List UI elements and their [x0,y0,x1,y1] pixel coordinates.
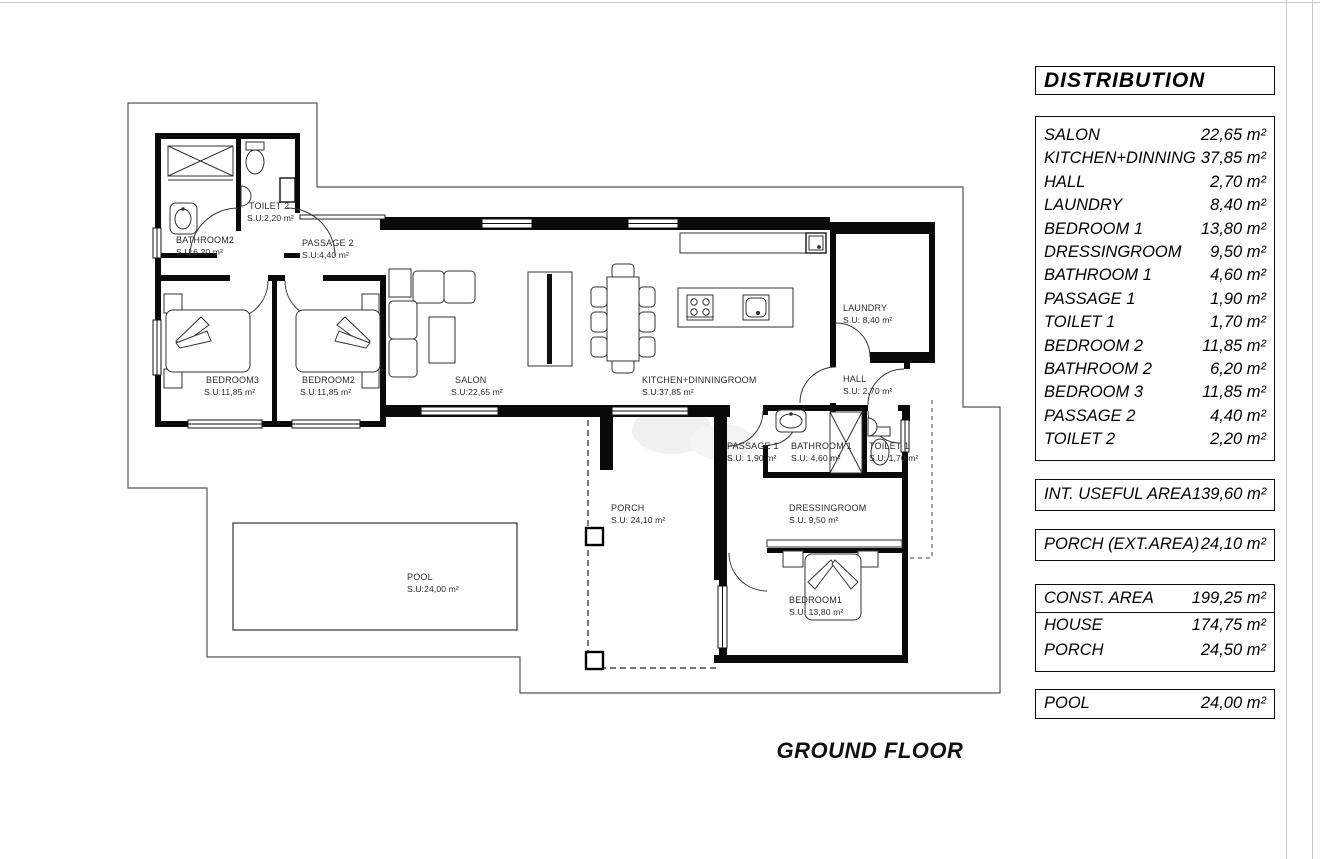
room-area: 4,60 m² [1210,264,1266,287]
room-label: BATHROOM 1 [791,441,852,451]
toilet2-duct [280,178,295,202]
summary-value: 24,10 m² [1201,535,1266,554]
list-item: PASSAGE 11,90 m² [1044,288,1266,311]
room-area: 13,80 m² [1201,218,1266,241]
window-symbol [292,420,360,428]
room-label: HALL [1044,171,1085,194]
room-area-label: S.U: 1,90 m² [727,453,776,463]
sink-symbol [170,203,197,234]
room-label: BATHROOM 2 [1044,358,1152,381]
window-symbol [153,228,161,258]
room-label: DRESSINGROOM [1044,241,1182,264]
room-label: PASSAGE 1 [1044,288,1135,311]
room-area: 9,50 m² [1210,241,1266,264]
overhang-dashed-line [908,400,932,558]
list-item: BATHROOM 26,20 m² [1044,358,1266,381]
window-symbol [153,320,161,375]
door-arc [836,323,870,357]
room-label: TOILET 1 [869,441,909,451]
room-label: BEDROOM2 [302,375,355,385]
list-item: SALON22,65 m² [1044,124,1266,147]
room-area: 22,65 m² [1201,124,1266,147]
ground-floor-title: GROUND FLOOR [777,738,964,763]
room-area-label: S.U:22,65 m² [451,387,503,397]
room-label: PORCH [611,503,645,513]
list-item: BEDROOM 311,85 m² [1044,381,1266,404]
toilet-symbol [246,142,264,174]
room-area-label: S.U: 8,40 m² [843,315,892,325]
summary-value: 174,75 m² [1192,613,1266,638]
room-label: LAUNDRY [843,303,887,313]
window-symbol [628,219,678,228]
summary-value: 24,00 m² [1201,694,1266,713]
wardrobe-symbol [767,540,902,547]
door-arc [800,367,836,403]
room-area: 11,85 m² [1202,335,1266,358]
summary-label: POOL [1044,694,1090,713]
room-label: BEDROOM3 [206,375,259,385]
room-area-label: S.U: 1,70 m² [869,453,918,463]
cooktop-symbol [687,295,713,320]
list-item: BEDROOM 211,85 m² [1044,335,1266,358]
summary-label: CONST. AREA [1044,585,1154,612]
door-arc [729,553,767,591]
room-area: 8,40 m² [1210,194,1266,217]
room-label: HALL [843,374,866,384]
list-item: TOILET 22,20 m² [1044,428,1266,451]
room-label: TOILET 1 [1044,311,1115,334]
room-label: SALON [1044,124,1100,147]
room-area-label: S.U:6,20 m² [176,247,223,257]
room-label: BEDROOM 2 [1044,335,1143,358]
list-item: LAUNDRY8,40 m² [1044,194,1266,217]
room-label: TOILET 2 [249,201,289,211]
list-item: DRESSINGROOM9,50 m² [1044,241,1266,264]
room-label: BEDROOM 3 [1044,381,1143,404]
room-area: 6,20 m² [1210,358,1266,381]
summary-label: PORCH (EXT.AREA) [1044,535,1199,554]
const-area-box: CONST. AREA 199,25 m² HOUSE 174,75 m² PO… [1035,584,1275,672]
list-item: HALL2,70 m² [1044,171,1266,194]
room-area-label: S.U:4,40 m² [302,250,349,260]
room-area-label: S.U:24,00 m² [407,584,459,594]
room-area-label: S.U: 13,80 m² [789,607,843,617]
summary-label: HOUSE [1044,613,1103,638]
window-symbol [718,586,727,648]
list-item: PASSAGE 24,40 m² [1044,405,1266,428]
room-area: 4,40 m² [1210,405,1266,428]
room-area-label: S.U: 4,60 m² [791,453,840,463]
room-label: KITCHEN+DINNINGROOM [642,375,757,385]
porch-ext-area-box: PORCH (EXT.AREA) 24,10 m² [1035,529,1275,561]
list-item: HOUSE 174,75 m² [1044,613,1266,638]
bed-symbol [164,294,250,388]
room-area-label: S.U:37,85 m² [642,387,694,397]
distribution-room-list: SALON22,65 m² KITCHEN+DINNING37,85 m² HA… [1035,116,1275,461]
room-label: DRESSINGROOM [789,503,866,513]
room-area-label: S.U: 9,50 m² [789,515,838,525]
list-item: BEDROOM 113,80 m² [1044,218,1266,241]
room-area: 1,90 m² [1210,288,1266,311]
window-symbol [421,407,498,415]
list-item: TOILET 11,70 m² [1044,311,1266,334]
room-area: 2,20 m² [1210,428,1266,451]
tv-cabinet-symbol [528,272,572,366]
room-area-label: S.U:2,20 m² [247,213,294,223]
summary-value: 199,25 m² [1192,585,1266,612]
list-item: BATHROOM 14,60 m² [1044,264,1266,287]
summary-value: 139,60 m² [1192,485,1266,504]
int-useful-area-box: INT. USEFUL AREA 139,60 m² [1035,479,1275,511]
list-item: CONST. AREA 199,25 m² [1036,585,1274,613]
kitchen-island-symbol [678,288,793,327]
window-symbol [612,407,688,415]
summary-label: PORCH [1044,638,1104,663]
floor-plan-sheet: BATHROOM2 S.U:6,20 m² TOILET 2 S.U:2,20 … [0,0,1320,859]
list-item: KITCHEN+DINNING37,85 m² [1044,147,1266,170]
room-area-label: S.U:11,85 m² [204,387,255,397]
pillar-symbol [586,652,603,669]
summary-value: 24,50 m² [1201,638,1266,663]
room-label: TOILET 2 [1044,428,1115,451]
room-label: PASSAGE 2 [302,238,354,248]
dining-table-symbol [591,264,655,373]
window-symbol [188,420,262,428]
kitchen-sink-symbol [743,295,769,320]
kitchen-counter-symbol [680,233,826,253]
room-label: BATHROOM2 [176,235,234,245]
room-label: SALON [455,375,487,385]
room-label: BATHROOM 1 [1044,264,1152,287]
distribution-header: DISTRIBUTION [1035,66,1275,95]
room-label: LAUNDRY [1044,194,1122,217]
room-area: 1,70 m² [1210,311,1266,334]
shower-symbol [168,146,233,180]
room-area: 11,85 m² [1202,381,1266,404]
sink-symbol [776,410,806,432]
room-area: 2,70 m² [1210,171,1266,194]
room-label: POOL [407,572,433,582]
pool-outline [233,523,517,630]
distribution-panel: DISTRIBUTION SALON22,65 m² KITCHEN+DINNI… [1035,66,1275,719]
room-area-label: S.U: 24,10 m² [611,515,665,525]
room-label: PASSAGE 1 [727,441,779,451]
room-label: PASSAGE 2 [1044,405,1135,428]
window-symbol [482,219,532,228]
doors [190,208,904,591]
list-item: PORCH 24,50 m² [1044,638,1266,663]
pillar-symbol [586,528,603,545]
bed-symbol [296,294,380,388]
room-area-label: S.U: 2,70 m² [843,386,892,396]
plot-boundary [128,103,1000,693]
room-label: BEDROOM 1 [1044,218,1143,241]
room-area-label: S.U:11,85 m² [300,387,351,397]
pool-area-box: POOL 24,00 m² [1035,689,1275,719]
room-label: BEDROOM1 [789,595,842,605]
room-area: 37,85 m² [1201,147,1266,170]
summary-label: INT. USEFUL AREA [1044,485,1192,504]
coffee-table-symbol [429,317,455,363]
room-label: KITCHEN+DINNING [1044,147,1196,170]
